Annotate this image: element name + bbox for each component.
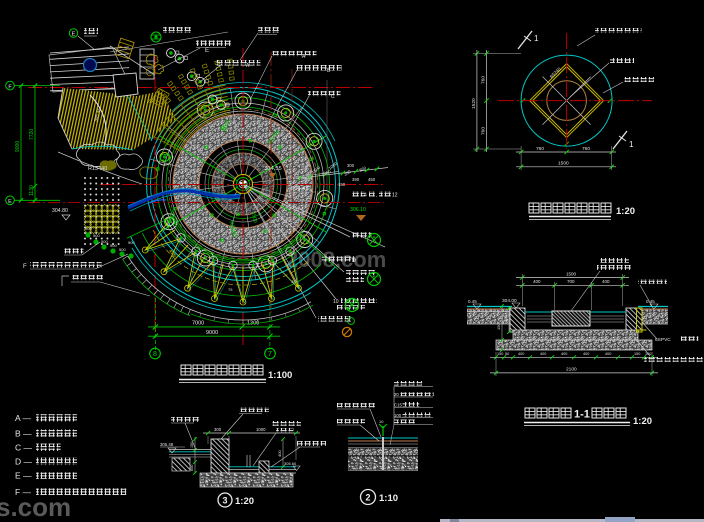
svg-text:150: 150 [634,352,640,356]
svg-text:390: 390 [303,177,311,182]
svg-text:900: 900 [110,243,117,248]
svg-text:400: 400 [583,352,589,356]
svg-text:10: 10 [379,419,384,424]
svg-text:306.10: 306.10 [350,207,366,213]
svg-text:2100: 2100 [566,367,577,373]
svg-text:150: 150 [190,442,194,448]
svg-text:7720: 7720 [29,129,35,140]
svg-text:400: 400 [605,352,611,356]
svg-text:4: 4 [364,193,367,199]
svg-text:45: 45 [291,279,296,284]
svg-text:A —: A — [15,413,32,423]
svg-text:D: D [352,258,356,264]
svg-text:E —: E — [15,471,32,481]
svg-text:1:10: 1:10 [379,493,398,504]
svg-text:1:20: 1:20 [616,206,635,217]
svg-text:F: F [23,264,27,270]
svg-text:760: 760 [481,127,487,135]
svg-text:9000: 9000 [15,141,21,152]
svg-text:3: 3 [222,496,227,506]
svg-text:6SPVC: 6SPVC [655,337,671,343]
svg-text:304.55: 304.55 [264,166,282,172]
svg-text:E: E [205,48,209,54]
svg-text:s.com: s.com [0,492,71,522]
svg-text:7000: 7000 [192,321,204,327]
svg-text:50: 50 [505,352,509,356]
svg-text:1:100: 1:100 [268,370,292,381]
svg-text:305.48: 305.48 [160,442,174,447]
svg-text:1500: 1500 [558,161,569,167]
svg-text:10: 10 [333,299,339,305]
svg-text:150: 150 [497,352,503,356]
svg-text:1-1: 1-1 [574,409,590,421]
svg-text:500: 500 [93,233,100,238]
svg-text:400: 400 [561,352,567,356]
svg-text:E: E [8,199,12,205]
svg-text:760: 760 [481,76,487,84]
svg-text:9000: 9000 [206,330,218,336]
svg-text:8: 8 [153,351,157,358]
svg-text:150: 150 [338,182,346,187]
svg-text:150: 150 [496,323,501,330]
svg-text:C: C [331,94,335,100]
svg-text:304.42: 304.42 [291,186,309,192]
svg-text:R13440: R13440 [88,166,107,172]
svg-text:300: 300 [214,427,222,432]
svg-text:400: 400 [518,352,524,356]
svg-text:400: 400 [602,279,610,284]
svg-text:1: 1 [534,34,539,43]
svg-text:12: 12 [392,193,398,199]
svg-text:700: 700 [567,279,575,284]
svg-text:760: 760 [582,146,590,152]
svg-text:1:20: 1:20 [633,416,652,427]
svg-text:1: 1 [629,140,634,149]
svg-text:400: 400 [533,279,541,284]
svg-text:C —: C — [15,443,33,453]
svg-text:500: 500 [119,247,126,252]
svg-text:600: 600 [190,465,194,471]
svg-text:400: 400 [277,450,282,457]
svg-text:0.45: 0.45 [468,299,477,304]
svg-text:450: 450 [368,177,376,182]
svg-text:75: 75 [228,287,233,292]
svg-text:1500: 1500 [566,271,577,276]
svg-text:305.60: 305.60 [284,461,297,466]
svg-text:390: 390 [352,177,360,182]
svg-text:20: 20 [394,392,399,397]
svg-text:400: 400 [540,352,546,356]
svg-text:C15: C15 [394,403,402,408]
svg-text:350: 350 [503,315,508,322]
svg-text:2: 2 [365,493,370,503]
svg-text:F —: F — [15,487,32,497]
svg-text:D —: D — [15,457,33,467]
svg-text:E: E [72,32,76,38]
svg-text:7: 7 [268,351,272,358]
svg-text:760: 760 [536,146,544,152]
svg-text:1130: 1130 [29,185,35,196]
svg-text:500: 500 [101,239,108,244]
svg-text:1:20: 1:20 [235,496,254,507]
svg-text:500: 500 [85,226,92,231]
svg-text:B —: B — [15,429,32,439]
svg-text:1000: 1000 [256,427,266,432]
svg-text:,: , [376,193,377,199]
svg-text:304.80: 304.80 [52,208,68,214]
svg-text:1520: 1520 [471,98,477,109]
svg-text:300: 300 [347,163,355,168]
